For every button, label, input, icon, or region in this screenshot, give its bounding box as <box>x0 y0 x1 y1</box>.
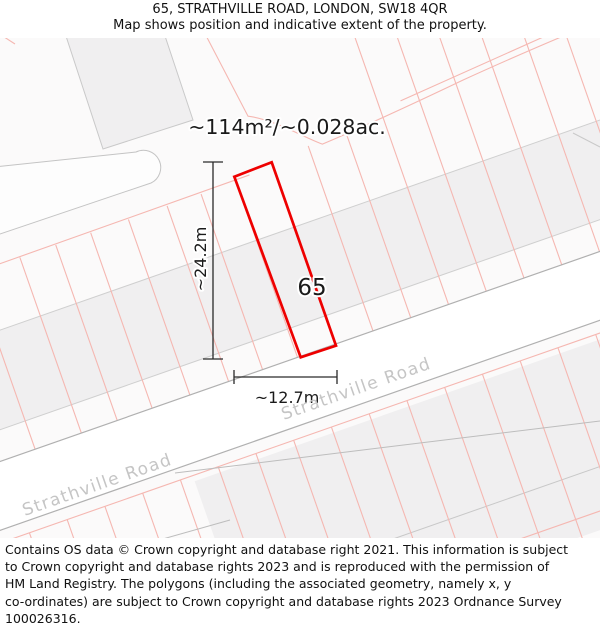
plot-number-label: 65 <box>297 275 326 301</box>
map-canvas: ~114m²/~0.028ac. 65 ~24.2m ~12.7m Strath… <box>0 0 600 625</box>
footer-line: co-ordinates) are subject to Crown copyr… <box>5 593 597 610</box>
footer-line: 100026316. <box>5 610 597 627</box>
footer-line: Contains OS data © Crown copyright and d… <box>5 541 597 558</box>
page-subtitle: Map shows position and indicative extent… <box>0 18 600 34</box>
header: 65, STRATHVILLE ROAD, LONDON, SW18 4QR M… <box>0 0 600 38</box>
area-label: ~114m²/~0.028ac. <box>188 115 386 139</box>
footer-line: HM Land Registry. The polygons (includin… <box>5 575 597 592</box>
page-title: 65, STRATHVILLE ROAD, LONDON, SW18 4QR <box>0 0 600 18</box>
property-map-page: ~114m²/~0.028ac. 65 ~24.2m ~12.7m Strath… <box>0 0 600 625</box>
vertical-dimension-label: ~24.2m <box>191 227 210 292</box>
footer-line: to Crown copyright and database rights 2… <box>5 558 597 575</box>
copyright-footer: Contains OS data © Crown copyright and d… <box>0 538 600 628</box>
